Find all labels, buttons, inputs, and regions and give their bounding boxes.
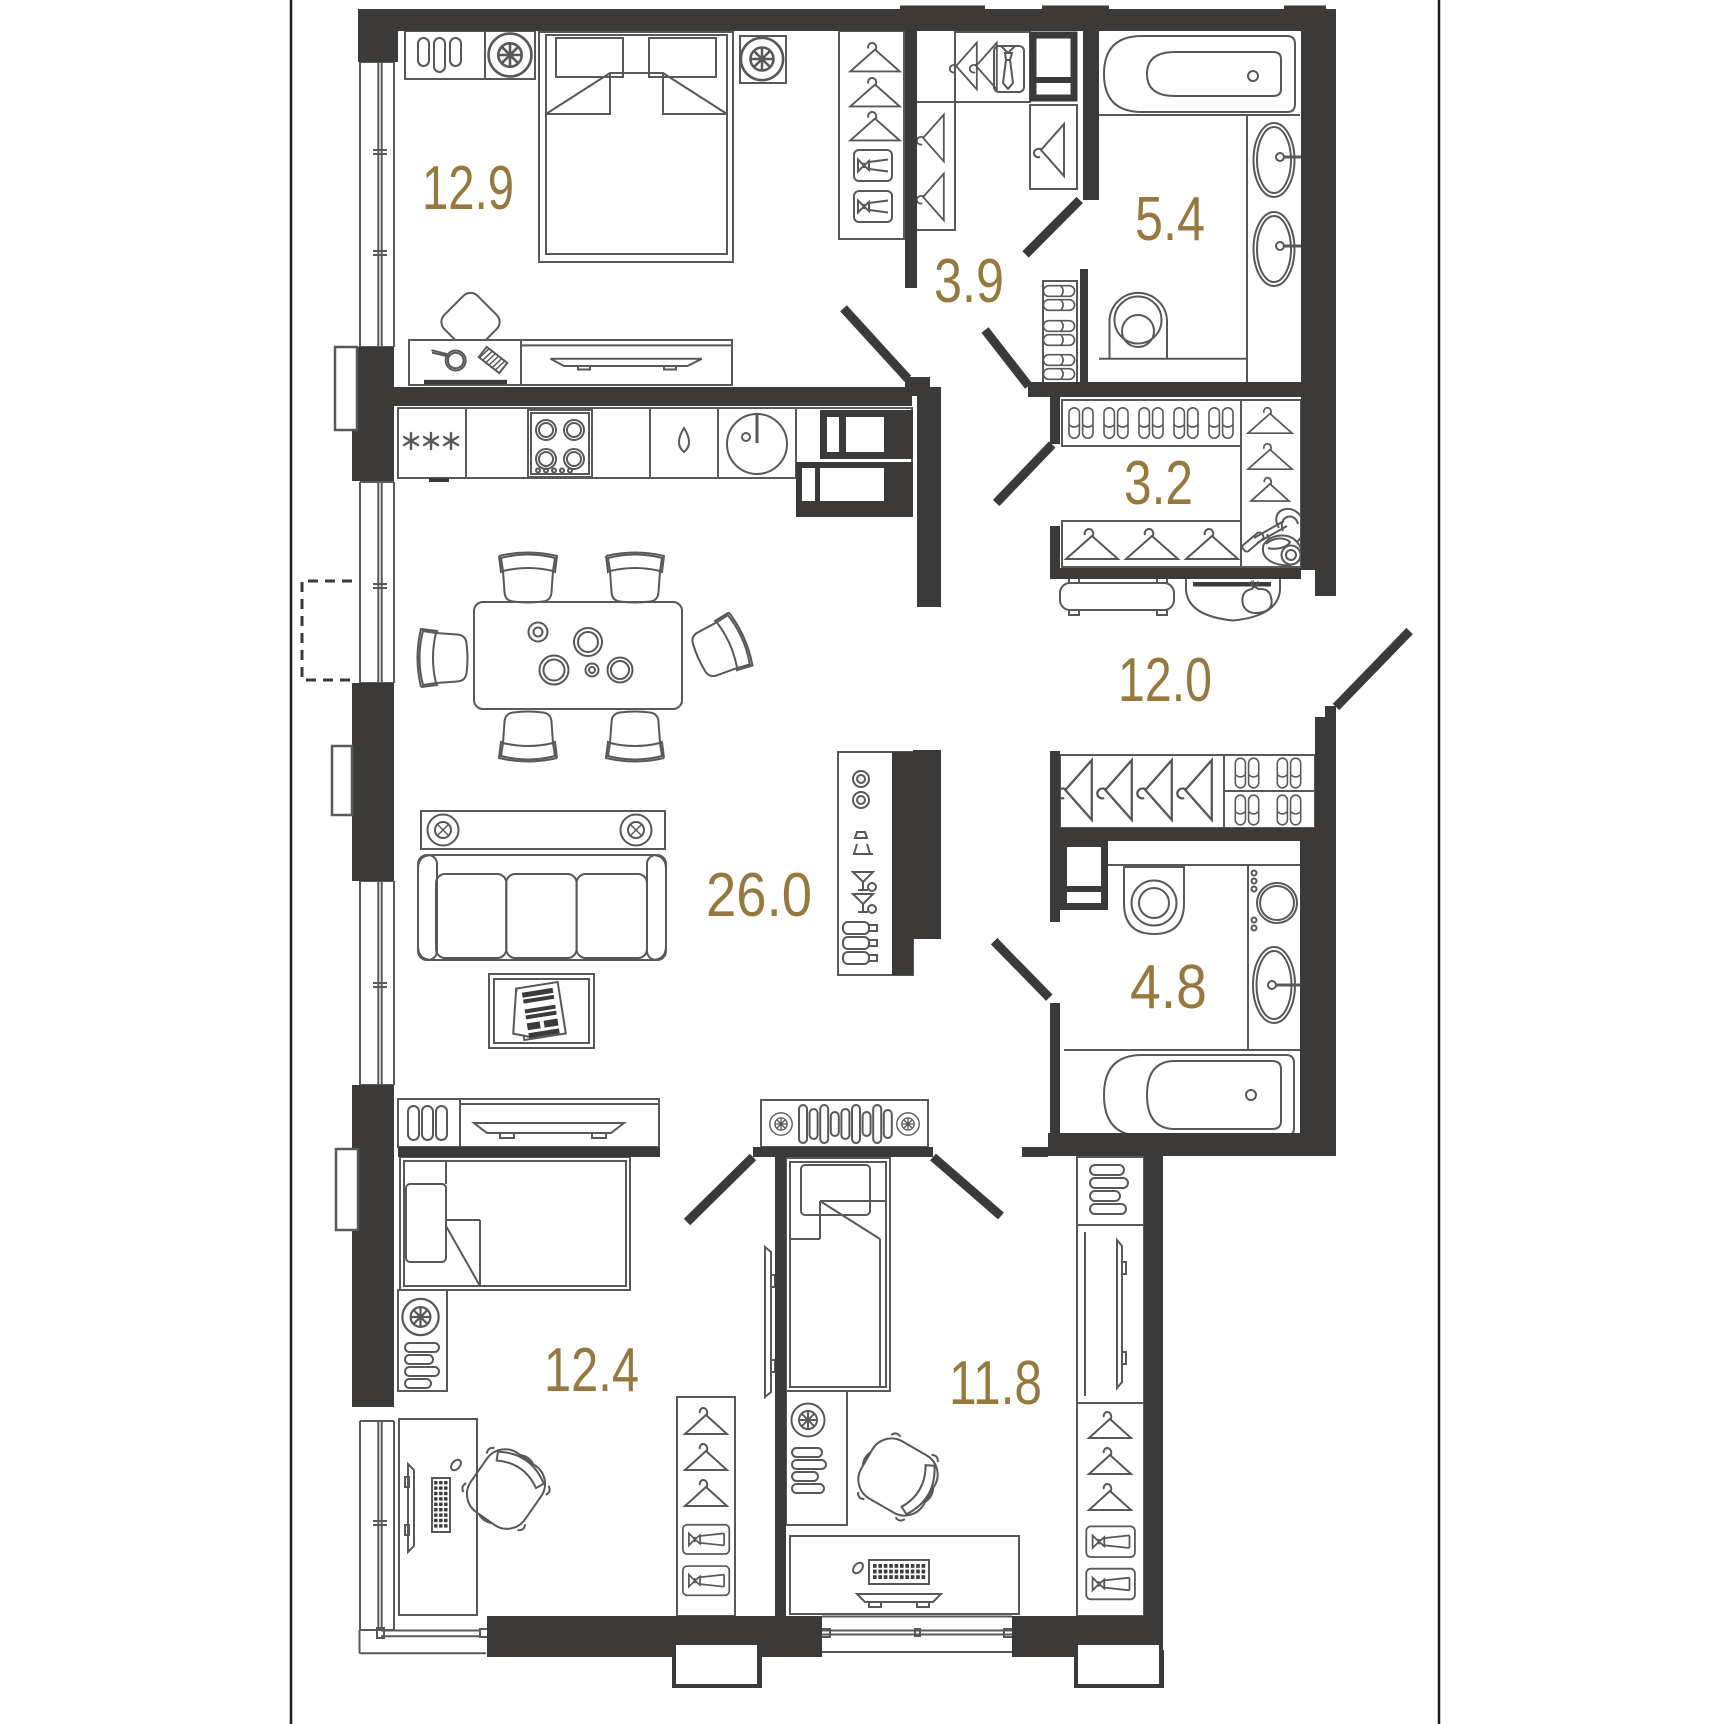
svg-text:5.4: 5.4 xyxy=(1135,185,1205,254)
svg-text:12.0: 12.0 xyxy=(1118,646,1212,715)
svg-text:12.9: 12.9 xyxy=(422,154,514,223)
svg-text:11.8: 11.8 xyxy=(949,1349,1042,1418)
svg-text:12.4: 12.4 xyxy=(544,1336,639,1405)
svg-text:4.8: 4.8 xyxy=(1130,953,1207,1022)
svg-text:3.9: 3.9 xyxy=(934,247,1004,316)
svg-text:3.2: 3.2 xyxy=(1124,449,1193,518)
svg-text:26.0: 26.0 xyxy=(706,861,812,930)
